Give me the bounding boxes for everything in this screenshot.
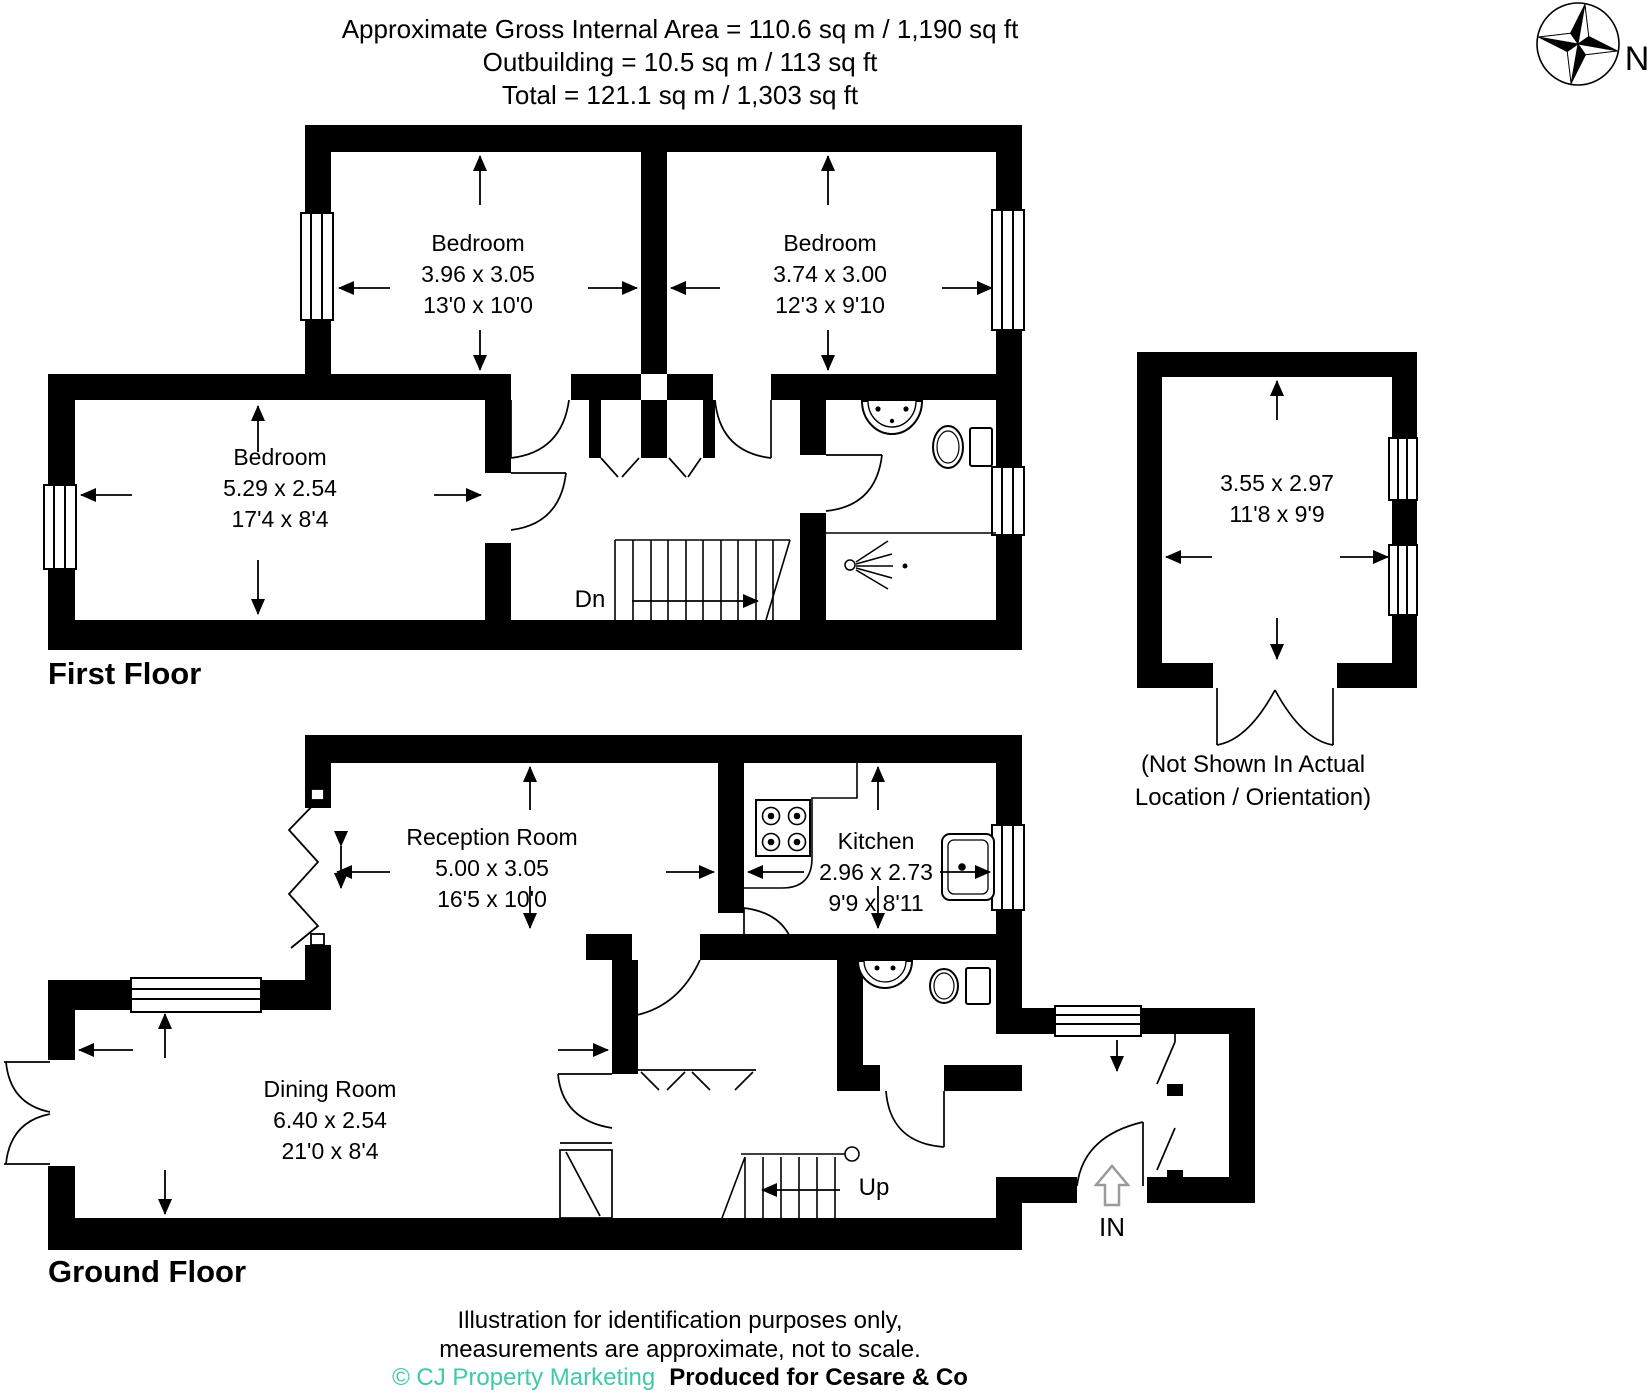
- shower-head: [826, 533, 996, 589]
- entry-door-arc: [1077, 1122, 1143, 1186]
- room-name: Bedroom: [773, 228, 887, 259]
- ground-floor-plan: [4, 735, 1255, 1250]
- footer-disclaimer-line-1: Illustration for identification purposes…: [457, 1306, 902, 1336]
- first-floor-walls: [48, 125, 1022, 650]
- room-size-imperial: 12'3 x 9'10: [773, 290, 887, 321]
- footer-disclaimer-line-2: measurements are approximate, not to sca…: [439, 1335, 921, 1365]
- room-size-metric: 3.74 x 3.00: [773, 259, 887, 290]
- cupboard-doors: [601, 458, 701, 477]
- room-size-imperial: 16'5 x 10'0: [406, 884, 577, 915]
- room-label-bedroom2: Bedroom 3.74 x 3.00 12'3 x 9'10: [773, 228, 887, 321]
- room-name: Reception Room: [406, 822, 577, 853]
- wc-fixtures: [858, 961, 990, 1004]
- room-label-outbuilding: 3.55 x 2.97 11'8 x 9'9: [1220, 468, 1334, 530]
- room-name: Bedroom: [223, 442, 337, 473]
- understairs-cupboard: [560, 1143, 612, 1218]
- room-size-metric: 5.29 x 2.54: [223, 473, 337, 504]
- room-size-metric: 2.96 x 2.73: [819, 857, 933, 888]
- room-size-metric: 6.40 x 2.54: [264, 1105, 397, 1136]
- room-size-metric: 5.00 x 3.05: [406, 853, 577, 884]
- room-size-imperial: 17'4 x 8'4: [223, 504, 337, 535]
- produced-for-text: Produced for Cesare & Co: [669, 1364, 968, 1391]
- window: [131, 978, 261, 1012]
- compass-rose-icon: [1537, 3, 1619, 85]
- room-size-imperial: 13'0 x 10'0: [421, 290, 535, 321]
- floorplan-drawing: [0, 0, 1648, 1393]
- window: [1389, 438, 1417, 500]
- door-arc: [886, 1091, 944, 1147]
- room-size-imperial: 11'8 x 9'9: [1220, 499, 1334, 530]
- sink: [862, 401, 922, 434]
- window: [992, 467, 1024, 535]
- entrance-label: IN: [1099, 1212, 1125, 1243]
- window: [301, 213, 333, 320]
- room-size-imperial: 9'9 x 8'11: [819, 888, 933, 919]
- outbuilding-note-line-2: Location / Orientation): [1135, 781, 1371, 814]
- outbuilding-note-line-1: (Not Shown In Actual: [1141, 748, 1365, 781]
- door-arc: [715, 400, 771, 458]
- room-label-bedroom3: Bedroom 5.29 x 2.54 17'4 x 8'4: [223, 442, 337, 535]
- room-size-imperial: 21'0 x 8'4: [264, 1136, 397, 1167]
- sink: [858, 961, 912, 988]
- window: [1389, 545, 1417, 615]
- compass-north-label: N: [1625, 40, 1648, 79]
- window: [992, 825, 1024, 910]
- toilet: [933, 426, 992, 468]
- stairs-down: [615, 540, 790, 620]
- door-arc: [511, 400, 569, 458]
- hall-cupboard-doors: [638, 1070, 756, 1090]
- door-arc: [632, 960, 700, 1016]
- ground-floor-title: Ground Floor: [48, 1254, 246, 1290]
- room-name: Kitchen: [819, 826, 933, 857]
- bifold-door-zigzag: [289, 789, 341, 948]
- room-name: Dining Room: [264, 1074, 397, 1105]
- door-arc: [511, 473, 566, 530]
- window: [992, 210, 1024, 330]
- first-floor-plan: [44, 125, 1024, 650]
- french-doors: [4, 1062, 50, 1164]
- entrance-arrow-icon: [1096, 1166, 1128, 1205]
- kitchen-sink: [942, 834, 994, 900]
- footer-credit-line: © CJ Property MarketingProduced for Cesa…: [392, 1363, 968, 1393]
- first-floor-doors: [511, 400, 882, 530]
- header-line-2: Outbuilding = 10.5 sq m / 113 sq ft: [483, 45, 878, 79]
- room-label-kitchen: Kitchen 2.96 x 2.73 9'9 x 8'11: [819, 826, 933, 919]
- room-label-reception: Reception Room 5.00 x 3.05 16'5 x 10'0: [406, 822, 577, 915]
- header-line-1: Approximate Gross Internal Area = 110.6 …: [342, 12, 1019, 46]
- first-floor-title: First Floor: [48, 656, 201, 692]
- copyright-text: © CJ Property Marketing: [392, 1364, 655, 1391]
- porch-cupboard-doors: [1157, 1034, 1175, 1170]
- toilet: [930, 968, 990, 1004]
- stairs-down-label: Dn: [575, 586, 606, 614]
- door-arc: [558, 1074, 612, 1128]
- outbuilding-plan: [1137, 352, 1417, 745]
- window: [44, 485, 76, 569]
- room-size-metric: 3.55 x 2.97: [1220, 468, 1334, 499]
- window: [1055, 1006, 1141, 1036]
- floorplan-page: Approximate Gross Internal Area = 110.6 …: [0, 0, 1648, 1393]
- header-line-3: Total = 121.1 sq m / 1,303 sq ft: [502, 78, 858, 112]
- room-name: Bedroom: [421, 228, 535, 259]
- outbuilding-double-doors: [1217, 688, 1333, 745]
- stairs-up-label: Up: [859, 1174, 890, 1202]
- room-size-metric: 3.96 x 3.05: [421, 259, 535, 290]
- stove: [756, 800, 810, 856]
- stairs-up: [722, 1147, 859, 1218]
- room-label-dining: Dining Room 6.40 x 2.54 21'0 x 8'4: [264, 1074, 397, 1167]
- room-label-bedroom1: Bedroom 3.96 x 3.05 13'0 x 10'0: [421, 228, 535, 321]
- door-arc: [826, 455, 882, 511]
- bathroom-fixtures: [826, 401, 996, 589]
